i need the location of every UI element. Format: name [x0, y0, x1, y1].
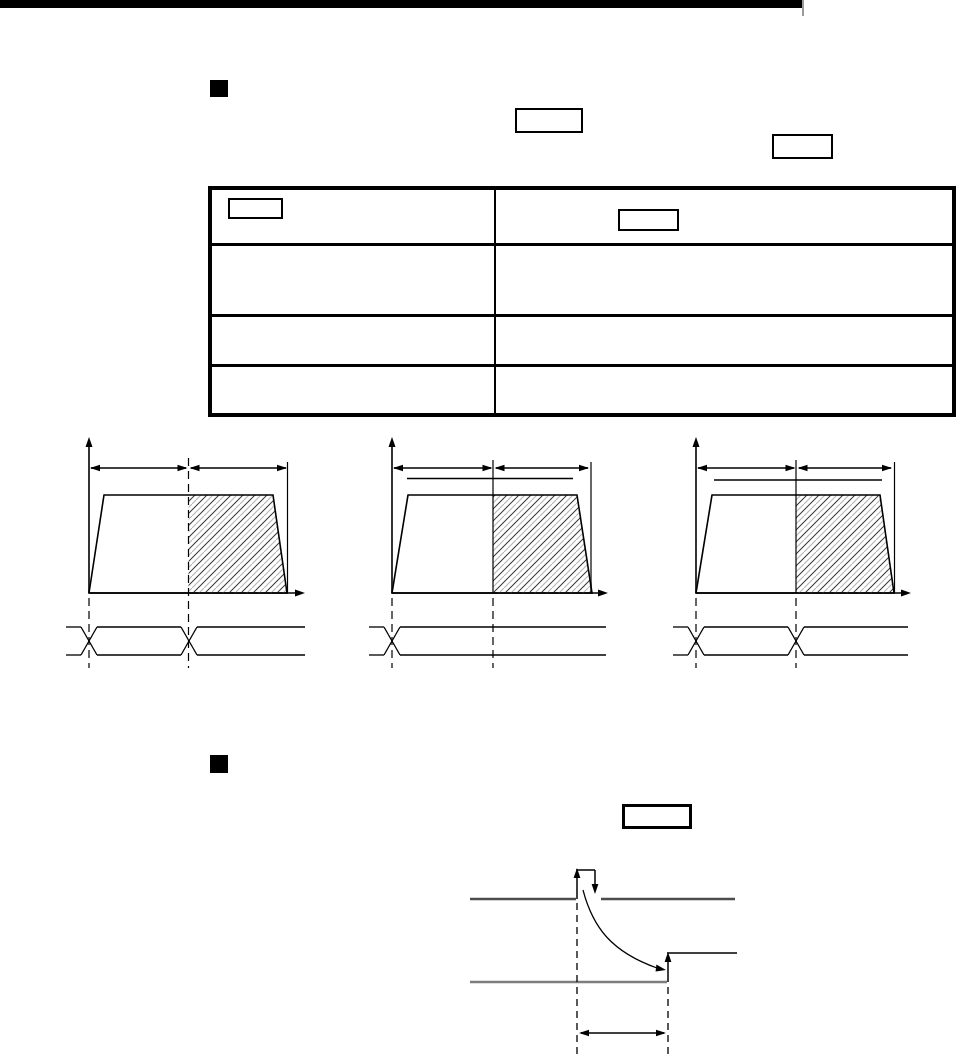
page-header-bar — [0, 0, 803, 8]
section-2-square-bullet-icon — [210, 755, 228, 773]
curved-arrowhead-icon — [656, 964, 666, 971]
interval-measure-arrow — [579, 1030, 666, 1036]
upper-signal — [470, 868, 735, 899]
section-1-square-bullet-icon — [210, 80, 228, 97]
data-bus-timing — [673, 627, 908, 655]
signal-name-box-1 — [515, 108, 583, 133]
cause-effect-curved-arrow — [583, 890, 666, 971]
manual-page: { "document": { "kind": "scanned manual … — [0, 0, 960, 1061]
velocity-trapezoid — [696, 495, 894, 593]
signal-name-box-2 — [772, 134, 833, 159]
parameter-table — [208, 186, 956, 417]
table-header-cell-1 — [212, 190, 494, 243]
pulse-fall-arrow-icon — [592, 884, 599, 894]
span-measure-arrows — [697, 465, 892, 471]
x-axis-arrow-icon — [598, 590, 608, 597]
x-axis-arrow-icon — [901, 590, 911, 597]
table-row-3-cell-1 — [212, 364, 494, 413]
x-axis-arrow-icon — [295, 590, 305, 597]
velocity-trapezoid — [392, 495, 592, 593]
pulse — [574, 868, 599, 899]
velocity-diagram-3 — [673, 437, 911, 668]
table-row-3-cell-2 — [494, 364, 952, 413]
span-measure-arrows — [393, 465, 589, 471]
velocity-diagram-2 — [369, 437, 608, 668]
signal-name-box-3 — [622, 804, 692, 829]
velocity-diagrams — [0, 430, 960, 680]
page-edge-tick — [802, 0, 804, 16]
table-header-box-2 — [618, 209, 679, 231]
table-header-cell-2 — [494, 190, 952, 243]
signal-timing-diagram — [0, 855, 960, 1061]
velocity-diagram-1 — [66, 437, 305, 668]
lower-signal — [470, 952, 737, 982]
table-row-2-cell-1 — [212, 314, 494, 364]
table-row-1-cell-1 — [212, 243, 494, 314]
table-row-1-cell-2 — [494, 243, 952, 314]
table-row-2-cell-2 — [494, 314, 952, 364]
data-bus-timing — [369, 627, 606, 655]
table-header-box-1 — [228, 198, 283, 219]
data-bus-timing — [66, 627, 305, 655]
